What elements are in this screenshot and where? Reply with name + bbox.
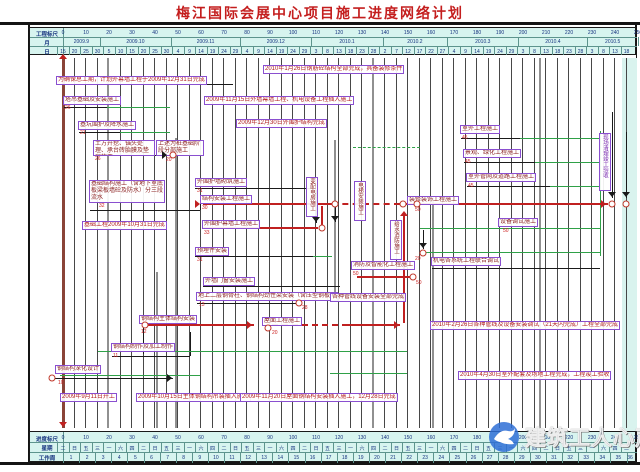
grid-line — [407, 58, 408, 428]
workweek-cell: 22 — [406, 455, 412, 461]
weekday-cell: 五 — [164, 445, 169, 452]
grid-line — [315, 58, 316, 428]
weekday-cell: 五 — [325, 445, 330, 452]
month-cell: 2009.9 — [74, 39, 89, 45]
float-line — [535, 162, 600, 163]
day-tick: 13 — [336, 49, 342, 55]
table-grid-line — [587, 37, 588, 46]
workweek-cell: 4 — [118, 455, 121, 461]
table-grid-line — [578, 452, 579, 463]
page-title: 梅江国际会展中心项目施工进度网络计划 — [0, 3, 640, 23]
table-grid-line — [103, 442, 104, 452]
workweek-cell: 17 — [326, 455, 332, 461]
progress-scale-tick: 30 — [129, 435, 135, 441]
critical-path-line — [357, 276, 410, 278]
day-tick: 14 — [474, 49, 480, 55]
weekday-cell: 四 — [451, 445, 456, 452]
table-grid-line — [92, 442, 93, 452]
milestone-annotation: 为确保总工期，计划外幕墙工程于2009年12月31日完成 — [56, 76, 207, 85]
node-number: 30 — [202, 206, 208, 211]
table-grid-line — [610, 452, 611, 463]
progress-scale-tick: 60 — [198, 435, 204, 441]
watermark-text: 建筑工人心声 — [525, 422, 640, 452]
workweek-cell: 20 — [374, 455, 380, 461]
footer-week-label: 星期 — [41, 444, 52, 452]
grid-line — [189, 58, 190, 428]
node-number: 28 — [302, 306, 308, 311]
day-tick: 8 — [326, 49, 329, 55]
table-grid-line — [63, 452, 64, 463]
table-grid-line — [240, 37, 241, 46]
node-number: 33 — [204, 231, 210, 236]
day-tick: 29 — [302, 49, 308, 55]
task-label: 机电各系统工程联合调试 — [431, 257, 501, 266]
milestone-annotation: 2010年1月26日钢筋砼结构全部完成，具备装修条件 — [263, 65, 404, 74]
node-number: 12 — [141, 330, 147, 335]
grid-line — [442, 58, 443, 428]
table-grid-line — [79, 452, 80, 463]
grid-line — [120, 58, 121, 428]
node-number: 13 — [199, 303, 205, 308]
weekday-cell: 二 — [463, 445, 468, 452]
progress-scale-tick: 0 — [62, 435, 65, 441]
table-grid-line — [498, 452, 499, 463]
month-cell: 2009.10 — [126, 39, 144, 45]
task-label: 变配电房施工 — [306, 177, 318, 217]
task-label: 钢结构制作及加工制作 — [111, 343, 175, 352]
workweek-cell: 1 — [70, 455, 73, 461]
table-grid-line — [337, 452, 338, 463]
workweek-cell: 3 — [102, 455, 105, 461]
weekday-cell: 四 — [129, 445, 134, 452]
day-tick: 22 — [428, 49, 434, 55]
table-grid-line — [299, 442, 300, 452]
progress-scale-tick: 140 — [381, 435, 389, 441]
table-grid-line — [518, 37, 519, 46]
day-tick: 18 — [555, 49, 561, 55]
table-grid-line — [379, 442, 380, 452]
table-grid-line — [287, 442, 288, 452]
scale-tick: 90 — [267, 30, 273, 36]
float-line — [520, 138, 600, 139]
table-grid-line — [356, 442, 357, 452]
grid-line — [246, 58, 247, 428]
milestone-annotation: 2009年12月30日外围护结构完成 — [236, 119, 327, 128]
table-grid-line — [288, 452, 289, 463]
day-tick: 13 — [543, 49, 549, 55]
float-line — [107, 107, 170, 108]
day-tick: 4 — [177, 49, 180, 55]
table-grid-line — [369, 452, 370, 463]
table-grid-line — [345, 442, 346, 452]
weekday-cell: 一 — [187, 445, 192, 452]
workweek-cell: 21 — [390, 455, 396, 461]
weekday-cell: 日 — [152, 445, 157, 452]
critical-path-line — [143, 324, 254, 326]
weekday-cell: 二 — [382, 445, 387, 452]
day-tick: 7 — [395, 49, 398, 55]
weekday-cell: 日 — [72, 445, 77, 452]
scale-tick: 30 — [129, 30, 135, 36]
scale-tick: 180 — [473, 30, 481, 36]
task-label: 外围护幕墙工程施工 — [202, 220, 260, 229]
top-rule — [0, 22, 640, 25]
workweek-cell: 30 — [535, 455, 541, 461]
node-number: 10 — [58, 381, 64, 386]
workweek-cell: 31 — [551, 455, 557, 461]
table-grid-line — [638, 37, 639, 46]
scale-tick: 200 — [519, 30, 527, 36]
schedule-sheet: 梅江国际会展中心项目施工进度网络计划 工程标尺月日010203040506070… — [0, 0, 640, 472]
progress-scale-tick: 50 — [175, 435, 181, 441]
right-margin-band — [622, 58, 637, 431]
stage-divider-line — [175, 138, 177, 428]
footer-workweek-label: 工作周 — [39, 454, 56, 462]
table-grid-line — [240, 452, 241, 463]
weekday-cell: 四 — [371, 445, 376, 452]
node-number: 26 — [95, 157, 101, 162]
header-scale-label: 工程标尺 — [36, 30, 58, 38]
stage-divider-line — [107, 58, 109, 428]
table-grid-line — [127, 452, 128, 463]
table-grid-line — [460, 442, 461, 452]
table-grid-line — [530, 452, 531, 463]
weekday-cell: 日 — [313, 445, 318, 452]
weekday-cell: 日 — [474, 445, 479, 452]
scale-tick: 210 — [542, 30, 550, 36]
network-chart-area: 为确保总工期，计划外幕墙工程于2009年12月31日完成2010年1月26日钢筋… — [30, 55, 636, 431]
table-grid-line — [311, 37, 312, 46]
day-tick: 9 — [464, 49, 467, 55]
task-bar — [432, 268, 600, 269]
table-grid-line — [385, 452, 386, 463]
weekday-cell: 二 — [141, 445, 146, 452]
scale-tick: 100 — [289, 30, 297, 36]
table-grid-line — [30, 37, 637, 38]
day-tick: 12 — [405, 49, 411, 55]
grid-line — [235, 58, 236, 428]
milestone-annotation: 2009年11月15日外墙幕墙工程、机电设备工程插入施工 — [204, 96, 354, 105]
month-cell: 2009.12 — [267, 39, 285, 45]
task-label: 各种管线设备安装全部完成 — [330, 293, 406, 302]
table-grid-line — [402, 442, 403, 452]
task-label: 基础结构施工（含地下室底板梁板墙砼及防水）分三段流水 — [89, 180, 165, 203]
node-number: 11 — [113, 354, 118, 359]
float-line — [330, 373, 407, 374]
task-bar — [461, 138, 520, 139]
table-grid-line — [95, 452, 96, 463]
workweek-cell: 6 — [150, 455, 153, 461]
task-label: 钢结构深化设计 — [55, 365, 101, 374]
day-tick: 15 — [129, 49, 135, 55]
weekday-cell: 五 — [83, 445, 88, 452]
scale-tick: 140 — [381, 30, 389, 36]
progress-scale-tick: 100 — [289, 435, 297, 441]
table-grid-line — [224, 452, 225, 463]
table-grid-line — [514, 452, 515, 463]
task-label: 预埋件安装 — [195, 247, 229, 256]
grid-line — [269, 58, 270, 428]
day-tick: 4 — [246, 49, 249, 55]
table-grid-line — [562, 452, 563, 463]
task-bar — [55, 378, 173, 379]
grid-line — [327, 58, 328, 428]
arrow-marker — [331, 216, 339, 221]
table-grid-line — [208, 452, 209, 463]
dove-globe-icon — [488, 421, 520, 453]
arrow-marker — [312, 217, 320, 222]
scale-tick: 230 — [588, 30, 596, 36]
node-number: 45 — [465, 160, 471, 165]
node-number: 50 — [415, 208, 421, 213]
scale-tick: 40 — [152, 30, 158, 36]
day-tick: 10 — [118, 49, 124, 55]
grid-line — [131, 58, 132, 428]
arrow-marker — [59, 54, 67, 59]
day-tick: 30 — [95, 49, 101, 55]
day-tick: 14 — [198, 49, 204, 55]
progress-scale-tick: 150 — [404, 435, 412, 441]
task-label: 地上二层钢骨柱、钢结构劲性梁安装（含压型钢板） — [196, 292, 338, 301]
network-node — [319, 225, 326, 232]
table-grid-line — [171, 37, 172, 46]
day-tick: 20 — [72, 49, 78, 55]
task-bar — [464, 162, 535, 163]
table-grid-line — [449, 452, 450, 463]
day-tick: 19 — [279, 49, 285, 55]
table-grid-line — [115, 442, 116, 452]
table-grid-line — [417, 452, 418, 463]
progress-scale-tick: 170 — [450, 435, 458, 441]
grid-line — [223, 58, 224, 428]
day-tick: 13 — [612, 49, 618, 55]
day-tick: 5 — [108, 49, 111, 55]
workweek-cell: 8 — [182, 455, 185, 461]
table-grid-line — [218, 442, 219, 452]
table-grid-line — [256, 452, 257, 463]
weekday-cell: 三 — [417, 445, 422, 452]
workweek-cell: 18 — [342, 455, 348, 461]
weekday-cell: 三 — [336, 445, 341, 452]
table-grid-line — [437, 442, 438, 452]
table-grid-line — [138, 442, 139, 452]
arrow-marker — [195, 200, 200, 208]
node-number: 50 — [503, 229, 509, 234]
workweek-cell: 9 — [198, 455, 201, 461]
task-bar — [197, 303, 296, 304]
month-cell: 2010.3 — [475, 39, 490, 45]
weekday-cell: 日 — [394, 445, 399, 452]
progress-scale-tick: 90 — [267, 435, 273, 441]
workweek-cell: 24 — [439, 455, 445, 461]
table-grid-line — [241, 442, 242, 452]
critical-path-line — [332, 203, 400, 205]
workweek-cell: 12 — [245, 455, 251, 461]
scale-tick: 110 — [312, 30, 320, 36]
table-grid-line — [425, 442, 426, 452]
weekday-cell: 一 — [106, 445, 111, 452]
workweek-cell: 25 — [455, 455, 461, 461]
scale-tick: 190 — [496, 30, 504, 36]
table-grid-line — [322, 442, 323, 452]
progress-scale-tick: 130 — [358, 435, 366, 441]
network-node — [623, 201, 630, 208]
grid-line — [453, 58, 454, 428]
network-node — [142, 322, 149, 329]
weekday-cell: 六 — [118, 445, 123, 452]
table-grid-line — [176, 452, 177, 463]
critical-connector-line — [321, 206, 323, 225]
grid-line — [212, 58, 213, 428]
node-number: 31 — [197, 258, 203, 263]
table-grid-line — [448, 442, 449, 452]
table-grid-line — [253, 442, 254, 452]
day-tick: 8 — [533, 49, 536, 55]
progress-scale-tick: 70 — [221, 435, 227, 441]
task-bar — [467, 186, 550, 187]
grid-line — [177, 58, 178, 428]
node-number: 50 — [353, 272, 359, 277]
weekday-cell: 三 — [256, 445, 261, 452]
grid-line — [154, 58, 155, 428]
table-grid-line — [192, 452, 193, 463]
day-tick: 18 — [348, 49, 354, 55]
day-tick: 3 — [315, 49, 318, 55]
table-grid-line — [69, 442, 70, 452]
day-tick: 28 — [371, 49, 377, 55]
arrow-marker — [622, 192, 630, 197]
grid-line — [292, 58, 293, 428]
network-node — [609, 201, 616, 208]
progress-scale-tick: 80 — [244, 435, 250, 441]
table-grid-line — [466, 452, 467, 463]
weekday-cell: 日 — [233, 445, 238, 452]
workweek-cell: 14 — [278, 455, 284, 461]
weekday-cell: 三 — [95, 445, 100, 452]
arrow-marker — [247, 321, 252, 329]
workweek-cell: 16 — [310, 455, 316, 461]
table-grid-line — [276, 442, 277, 452]
day-tick: 27 — [440, 49, 446, 55]
node-number: 20 — [415, 257, 421, 262]
day-tick: 4 — [453, 49, 456, 55]
weekday-cell: 六 — [440, 445, 445, 452]
month-cell: 2010.5 — [605, 39, 620, 45]
day-tick: 23 — [566, 49, 572, 55]
table-grid-line — [433, 452, 434, 463]
arrow-marker — [167, 374, 172, 382]
milestone-annotation: 2009年9月11日开工 — [60, 393, 117, 402]
day-tick: 17 — [417, 49, 423, 55]
milestone-annotation: 2009年10月15日主体钢结构吊装插入施工 — [136, 393, 251, 402]
progress-scale-tick: 120 — [335, 435, 343, 441]
month-cell: 2009.11 — [197, 39, 215, 45]
scale-tick: 20 — [106, 30, 112, 36]
day-tick: 3 — [591, 49, 594, 55]
network-node — [400, 201, 407, 208]
table-grid-line — [447, 37, 448, 46]
weekday-cell: 六 — [359, 445, 364, 452]
task-label: 室外工程施工 — [460, 125, 500, 134]
workweek-cell: 19 — [358, 455, 364, 461]
table-grid-line — [594, 452, 595, 463]
arrow-marker — [59, 422, 67, 427]
workweek-cell: 32 — [567, 455, 573, 461]
scale-tick: 10 — [83, 30, 89, 36]
table-grid-line — [483, 442, 484, 452]
float-line — [60, 375, 200, 376]
milestone-annotation: 2009年11月20日屋面钢结构安装插入施工，12月28日完成 — [240, 393, 398, 402]
workweek-cell: 29 — [519, 455, 525, 461]
workweek-cell: 35 — [616, 455, 622, 461]
float-line — [313, 256, 332, 257]
workweek-cell: 13 — [261, 455, 267, 461]
scale-tick: 160 — [427, 30, 435, 36]
day-tick: 25 — [83, 49, 89, 55]
day-tick: 19 — [210, 49, 216, 55]
workweek-cell: 33 — [583, 455, 589, 461]
scale-tick: 60 — [198, 30, 204, 36]
weekday-cell: 二 — [221, 445, 226, 452]
weekday-cell: 二 — [60, 445, 65, 452]
workweek-cell: 27 — [487, 455, 493, 461]
weekday-cell: 四 — [210, 445, 215, 452]
node-number: 20 — [272, 331, 278, 336]
workweek-cell: 28 — [503, 455, 509, 461]
table-grid-line — [57, 442, 58, 452]
table-grid-line — [368, 442, 369, 452]
table-grid-line — [161, 442, 162, 452]
node-number: 45 — [462, 136, 468, 141]
task-label: 室外管网及道路工程施工 — [466, 173, 536, 182]
table-grid-line — [414, 442, 415, 452]
task-label: 消防及智能化工程施工 — [351, 261, 415, 270]
table-grid-line — [546, 452, 547, 463]
scale-tick: 220 — [565, 30, 573, 36]
weekday-cell: 一 — [348, 445, 353, 452]
milestone-annotation: 2010年4月30日室外配套及场地工程完成，工程竣工验收 — [458, 371, 611, 380]
day-tick: 25 — [152, 49, 158, 55]
workweek-cell: 2 — [86, 455, 89, 461]
float-line — [120, 132, 170, 133]
scale-tick: 0 — [62, 30, 65, 36]
day-tick: 30 — [164, 49, 170, 55]
task-label: 给水消防施工 — [390, 220, 402, 260]
task-label: 基坑围护及降水施工 — [78, 121, 136, 130]
day-tick: 29 — [233, 49, 239, 55]
node-number: 32 — [99, 204, 105, 209]
table-grid-line — [391, 442, 392, 452]
progress-scale-tick: 40 — [152, 435, 158, 441]
weekday-cell: 五 — [405, 445, 410, 452]
task-label: 电梯安装施工 — [354, 181, 366, 221]
progress-scale-tick: 110 — [312, 435, 320, 441]
table-grid-line — [111, 452, 112, 463]
node-number: 31 — [197, 189, 203, 194]
table-grid-line — [383, 37, 384, 46]
day-tick: 24 — [290, 49, 296, 55]
scale-tick: 150 — [404, 30, 412, 36]
workweek-cell: 36 — [627, 455, 633, 461]
progress-scale-tick: 160 — [427, 435, 435, 441]
stage-divider-line — [190, 332, 191, 356]
task-label: 外围护墙砌筑施工 — [195, 178, 247, 187]
arrow-marker — [601, 200, 606, 208]
scale-tick: 240 — [611, 30, 619, 36]
day-tick: 28 — [578, 49, 584, 55]
task-bar — [90, 210, 200, 211]
table-grid-line — [172, 442, 173, 452]
